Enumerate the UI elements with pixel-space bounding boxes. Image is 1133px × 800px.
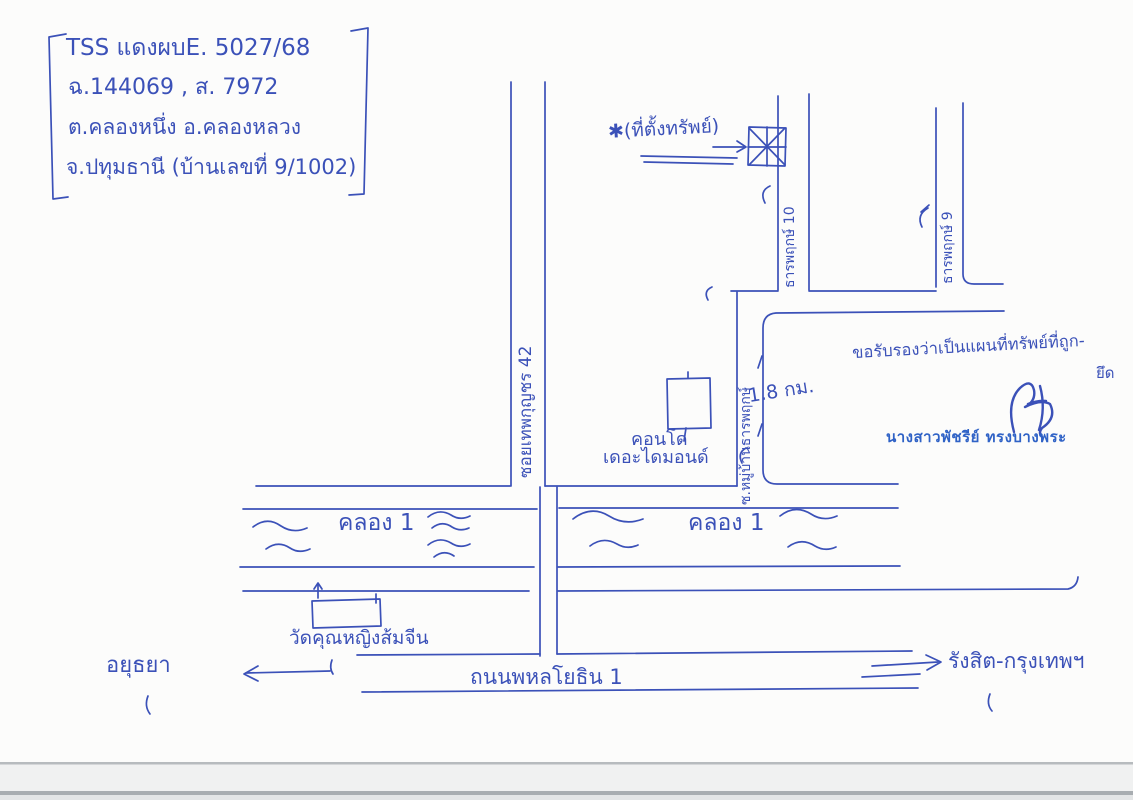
east-arrow-icon xyxy=(862,655,941,677)
marker-underline xyxy=(641,156,737,164)
west-arrow-icon xyxy=(244,666,330,681)
road-label-soi-10: ธารพฤกษ์ 10 xyxy=(783,206,798,288)
canal-label-right: คลอง 1 xyxy=(688,511,764,535)
road-crossing-lines xyxy=(540,487,557,656)
certification-line2: ยึด xyxy=(1096,366,1115,382)
deed-number-line: ฉ.144069 , ส. 7972 xyxy=(68,76,278,99)
canal-label-left: คลอง 1 xyxy=(338,511,414,535)
main-road-label: ถนนพหลโยธิน 1 xyxy=(470,666,623,688)
direction-east-label: รังสิต-กรุงเทพฯ xyxy=(948,650,1084,672)
road-phahonyothin-lines xyxy=(357,651,918,692)
temple-label: วัดคุณหญิงส้มจีน xyxy=(289,629,429,649)
case-number-line: TSS แดงผบE. 5027/68 xyxy=(66,36,310,60)
condo-label-line2: เดอะไดมอนด์ xyxy=(603,449,709,468)
province-house-no-line: จ.ปทุมธานี (บ้านเลขที่ 9/1002) xyxy=(66,156,356,178)
scan-artifacts xyxy=(0,762,1133,800)
direction-west-label: อยุธยา xyxy=(106,654,171,677)
pen-flourishes xyxy=(146,186,992,714)
subdistrict-line: ต.คลองหนึ่ง อ.คลองหลวง xyxy=(68,116,301,138)
road-canal-south-line xyxy=(243,577,1078,591)
property-marker-icon xyxy=(748,127,786,166)
certifier-name-stamp: นางสาวพัชรีย์ ทรงบางพระ xyxy=(886,430,1067,446)
road-label-soi-9: ธารพฤกษ์ 9 xyxy=(941,211,956,284)
marker-arrow-icon xyxy=(713,141,746,152)
scanned-map-page: TSS แดงผบE. 5027/68 ฉ.144069 , ส. 7972 ต… xyxy=(0,0,1133,800)
road-label-thep-kunchon-42: ซอยเทพกุญชร 42 xyxy=(518,346,536,478)
